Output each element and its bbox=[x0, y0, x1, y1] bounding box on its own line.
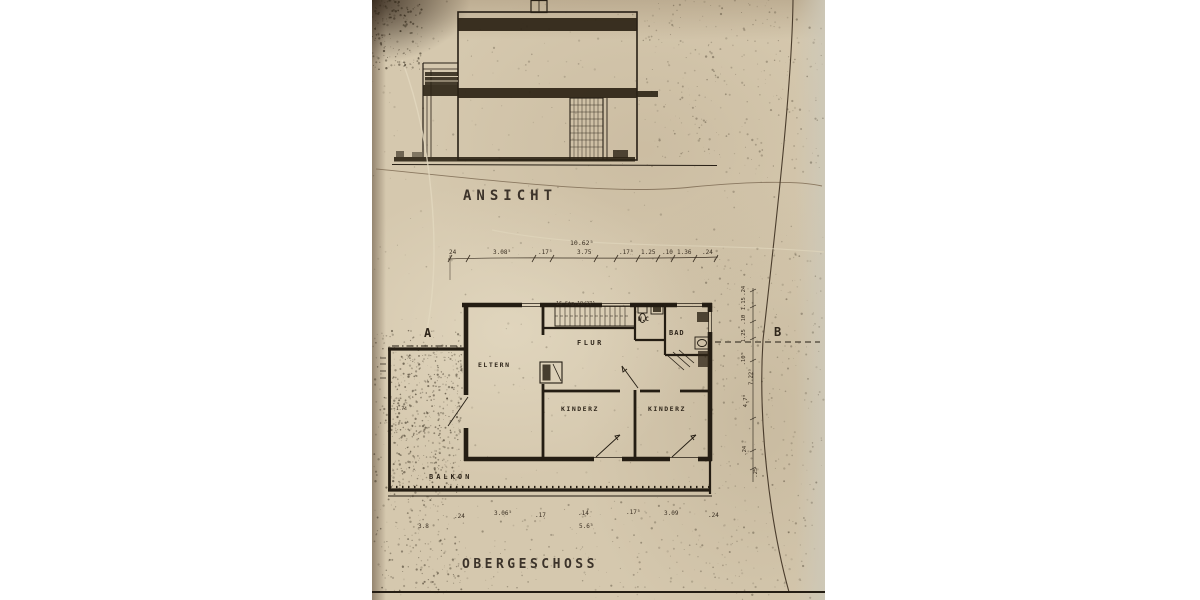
room-label-flur: FLUR bbox=[577, 340, 604, 347]
room-label-bad: BAD bbox=[669, 330, 685, 337]
dim-top-2: .17⁵ bbox=[538, 250, 552, 256]
dim-right-7: .24 bbox=[743, 446, 749, 456]
dim-right-2: .10 bbox=[742, 315, 748, 325]
blueprint-photo: ANSICHT OBERGESCHOSS 10.62⁵ 24 3.08⁵ .17… bbox=[372, 0, 825, 600]
dim-top-6: .10 bbox=[662, 250, 673, 256]
dim-bottom-4: .14 bbox=[578, 511, 589, 517]
plan-title: OBERGESCHOSS bbox=[462, 558, 598, 571]
dim-right-6: 4.7⁸ bbox=[744, 394, 750, 407]
dim-bottom-7: .24 bbox=[708, 513, 719, 519]
section-marker-a: A bbox=[424, 327, 431, 339]
dim-total-width: 10.62⁵ bbox=[570, 240, 593, 247]
dim-bottom-3: .17 bbox=[535, 513, 546, 519]
dim-top-3: 3.75 bbox=[577, 250, 591, 256]
floorplan-drawing bbox=[380, 288, 820, 496]
room-label-balkon: BALKON bbox=[429, 474, 472, 481]
dim-left: 1.74 bbox=[396, 408, 407, 413]
dim-bottom-5: .17⁵ bbox=[626, 510, 640, 516]
dim-right-1: 1.15 bbox=[742, 297, 748, 310]
section-marker-b: B bbox=[774, 326, 781, 338]
top-dimension-line bbox=[448, 255, 718, 280]
room-label-eltern: ELTERN bbox=[478, 362, 510, 369]
dim-bottom-1: .24 bbox=[454, 514, 465, 520]
dim-right-0: .24 bbox=[742, 286, 748, 296]
dim-bottom-2: 3.06⁵ bbox=[494, 511, 512, 517]
elevation-title: ANSICHT bbox=[463, 189, 557, 203]
dim-top-0: 24 bbox=[449, 250, 456, 256]
dim-right-4: .10⁵ bbox=[742, 352, 748, 365]
screenshot-root: { "photo": { "description": "scanned arc… bbox=[0, 0, 1200, 600]
dim-bottom-6: 3.09 bbox=[664, 511, 678, 517]
blueprint-drawing bbox=[372, 0, 825, 600]
dim-right-5: 7.22⁵ bbox=[750, 368, 756, 385]
dim-top-1: 3.08⁵ bbox=[493, 250, 511, 256]
elevation-drawing bbox=[376, 0, 822, 190]
room-label-wc: W.C bbox=[638, 317, 649, 323]
dim-right-3: 1.25 bbox=[742, 329, 748, 342]
room-label-kinderz-2: KINDERZ bbox=[648, 406, 686, 413]
stair-note: 16 Stg.19/27⁵ bbox=[556, 302, 595, 307]
dim-top-5: 1.25 bbox=[641, 250, 655, 256]
dim-top-8: .24 bbox=[702, 250, 713, 256]
room-label-kinderz-1: KINDERZ bbox=[561, 406, 599, 413]
dim-top-7: 1.36 bbox=[677, 250, 691, 256]
dim-bottom-0: 3.8 bbox=[418, 524, 429, 530]
dim-right-8: .25 bbox=[754, 468, 760, 478]
dim-top-4: .17⁵ bbox=[619, 250, 633, 256]
dim-bottom-8: 5.6⁵ bbox=[579, 524, 593, 530]
